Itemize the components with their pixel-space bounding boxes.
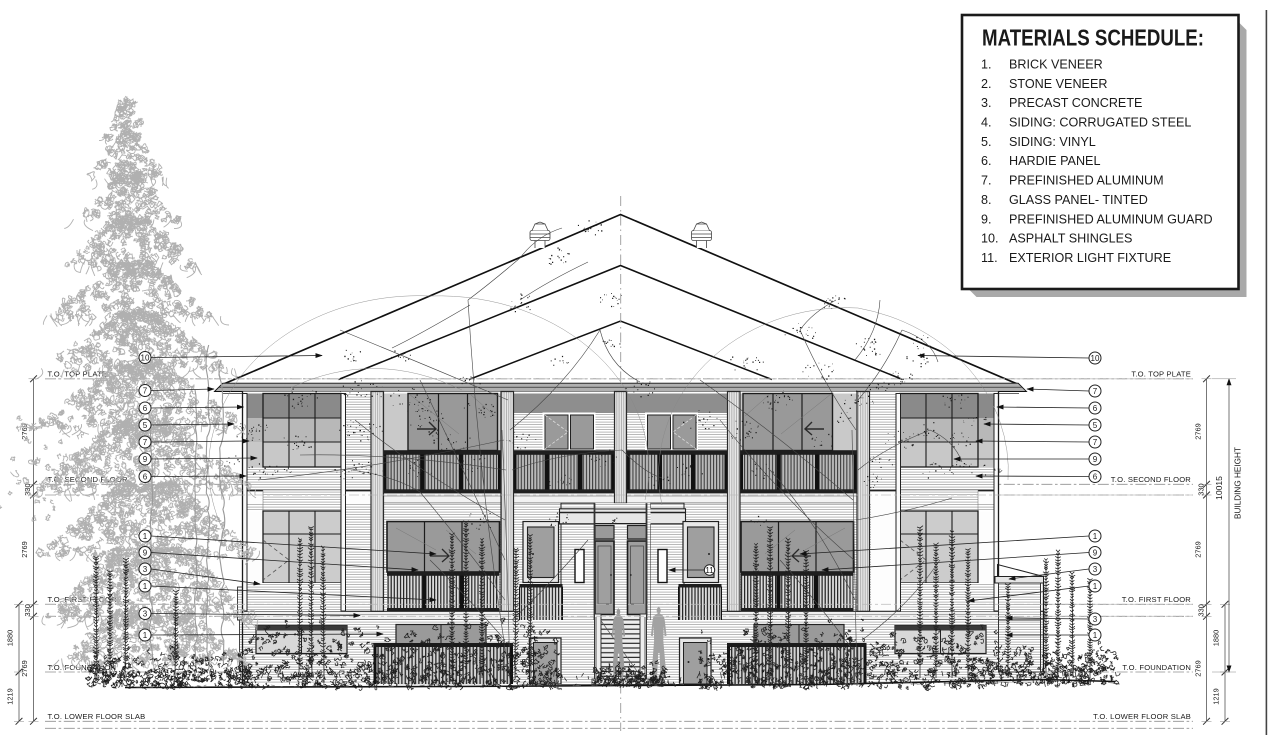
svg-text:330: 330 (1197, 483, 1206, 495)
svg-text:1: 1 (143, 532, 148, 541)
svg-text:1: 1 (143, 582, 148, 591)
svg-text:4.: 4. (981, 116, 992, 130)
svg-text:1: 1 (1093, 631, 1098, 640)
svg-text:PRECAST CONCRETE: PRECAST CONCRETE (1009, 96, 1142, 110)
svg-text:11.: 11. (981, 251, 998, 265)
svg-text:2769: 2769 (20, 541, 29, 557)
svg-text:10015: 10015 (1214, 476, 1224, 500)
svg-text:1.: 1. (981, 58, 992, 72)
svg-text:6: 6 (143, 472, 148, 481)
svg-text:5.: 5. (981, 135, 992, 149)
svg-text:8.: 8. (981, 193, 992, 207)
svg-text:2769: 2769 (1194, 660, 1203, 676)
svg-text:GLASS PANEL- TINTED: GLASS PANEL- TINTED (1009, 193, 1148, 207)
svg-text:BRICK VENEER: BRICK VENEER (1009, 58, 1103, 72)
svg-text:1880: 1880 (1212, 630, 1221, 646)
svg-text:HARDIE PANEL: HARDIE PANEL (1009, 154, 1100, 168)
svg-text:3.: 3. (981, 96, 992, 110)
svg-text:7: 7 (143, 386, 148, 395)
svg-text:9: 9 (1093, 455, 1098, 464)
svg-text:SIDING: CORRUGATED STEEL: SIDING: CORRUGATED STEEL (1009, 116, 1191, 130)
svg-text:MATERIALS SCHEDULE:: MATERIALS SCHEDULE: (982, 25, 1204, 51)
svg-text:1880: 1880 (6, 630, 15, 646)
svg-text:6: 6 (1093, 472, 1098, 481)
svg-text:2769: 2769 (20, 660, 29, 676)
svg-text:5: 5 (1093, 421, 1098, 430)
svg-text:11: 11 (705, 566, 714, 575)
svg-text:6.: 6. (981, 154, 992, 168)
svg-text:10.: 10. (981, 232, 999, 246)
svg-text:BUILDING HEIGHT: BUILDING HEIGHT (1234, 447, 1243, 519)
svg-text:T.O. FIRST FLOOR: T.O. FIRST FLOOR (1122, 595, 1192, 604)
svg-text:T.O. FOUNDATION: T.O. FOUNDATION (1122, 663, 1191, 672)
svg-text:1: 1 (1093, 532, 1098, 541)
svg-text:7.: 7. (981, 174, 992, 188)
svg-text:2.: 2. (981, 77, 992, 91)
svg-text:T.O. LOWER FLOOR SLAB: T.O. LOWER FLOOR SLAB (1093, 712, 1191, 721)
svg-text:10: 10 (141, 353, 150, 362)
svg-text:3: 3 (143, 565, 148, 574)
svg-text:ASPHALT SHINGLES: ASPHALT SHINGLES (1009, 232, 1132, 246)
svg-text:PREFINISHED ALUMINUM: PREFINISHED ALUMINUM (1009, 174, 1164, 188)
svg-text:2769: 2769 (1194, 423, 1203, 439)
svg-text:9: 9 (143, 548, 148, 557)
svg-text:330: 330 (1197, 604, 1206, 616)
svg-text:3: 3 (143, 609, 148, 618)
svg-text:T.O. LOWER FLOOR SLAB: T.O. LOWER FLOOR SLAB (48, 712, 146, 721)
svg-text:T.O. SECOND FLOOR: T.O. SECOND FLOOR (1111, 475, 1192, 484)
svg-text:T.O. TOP PLATE: T.O. TOP PLATE (1131, 370, 1191, 379)
svg-text:6: 6 (1093, 404, 1098, 413)
svg-text:9: 9 (143, 455, 148, 464)
svg-text:1: 1 (1093, 582, 1098, 591)
svg-text:STONE VENEER: STONE VENEER (1009, 77, 1107, 91)
svg-text:7: 7 (1093, 387, 1098, 396)
svg-text:5: 5 (143, 421, 148, 430)
svg-text:3: 3 (1093, 565, 1098, 574)
svg-text:330: 330 (23, 604, 32, 616)
svg-text:6: 6 (143, 404, 148, 413)
svg-text:7: 7 (1093, 438, 1098, 447)
svg-text:10: 10 (1091, 354, 1100, 363)
svg-text:1219: 1219 (6, 688, 15, 704)
svg-text:2769: 2769 (1194, 541, 1203, 557)
svg-text:SIDING: VINYL: SIDING: VINYL (1009, 135, 1096, 149)
svg-text:3: 3 (1093, 615, 1098, 624)
svg-text:1219: 1219 (1212, 688, 1221, 704)
svg-text:1: 1 (143, 631, 148, 640)
svg-text:9.: 9. (981, 212, 992, 226)
svg-text:PREFINISHED ALUMINUM GUARD: PREFINISHED ALUMINUM GUARD (1009, 212, 1213, 226)
svg-text:EXTERIOR LIGHT FIXTURE: EXTERIOR LIGHT FIXTURE (1009, 251, 1171, 265)
svg-text:9: 9 (1093, 548, 1098, 557)
svg-text:7: 7 (143, 438, 148, 447)
